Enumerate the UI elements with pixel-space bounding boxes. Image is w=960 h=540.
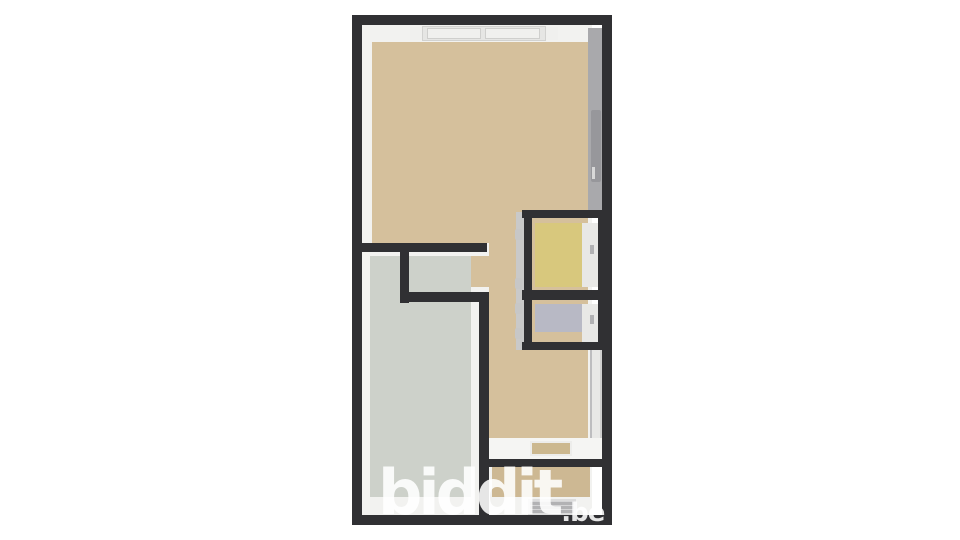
closet-wall-top (522, 210, 602, 218)
outer-wall-left (352, 15, 362, 525)
watermark-suffix: .be (561, 498, 604, 528)
door-handle-icon (590, 315, 594, 324)
door-hinge-icon (515, 303, 522, 314)
door-handle-icon (590, 245, 594, 254)
outer-wall-top (352, 15, 612, 25)
closet-wall-right (598, 210, 602, 350)
biddit-watermark: biddit.be (378, 462, 604, 524)
floor-plan (352, 15, 612, 525)
door-hinge-icon (515, 278, 522, 289)
door-hinge-icon (515, 229, 522, 240)
yellow-room-floor (535, 223, 582, 287)
top-window-side (546, 27, 558, 40)
yellow-room-wall-face (582, 223, 598, 287)
watermark-text: biddit (378, 456, 559, 529)
floor-plan-page: biddit.be (0, 0, 960, 540)
top-window-pane (485, 28, 540, 39)
closet-wall-left (524, 210, 532, 350)
door-hinge-icon (515, 328, 522, 339)
partition-wall-horizontal-upper (352, 243, 487, 252)
lavender-room-floor (535, 304, 582, 332)
outer-wall-right (602, 15, 612, 525)
partition-wall-horizontal-notch (400, 292, 489, 302)
door-handle-icon (592, 167, 595, 179)
top-window-side (410, 27, 422, 40)
closet-wall-bottom (522, 342, 602, 350)
stair-opening (530, 441, 572, 456)
top-window-pane (427, 28, 481, 39)
closet-wall-middle (522, 290, 602, 300)
